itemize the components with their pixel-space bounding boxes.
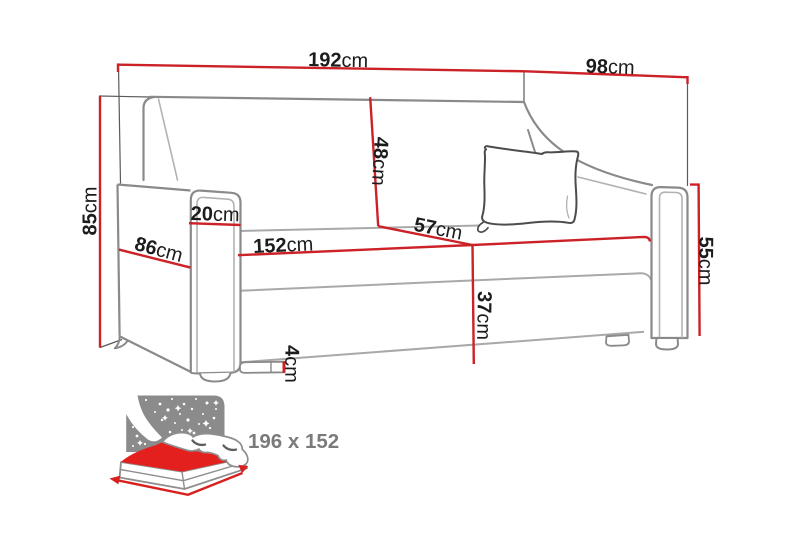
- svg-text:152cm: 152cm: [253, 233, 314, 258]
- svg-text:20cm: 20cm: [190, 203, 239, 226]
- svg-text:48cm: 48cm: [367, 136, 392, 186]
- svg-text:4cm: 4cm: [280, 345, 302, 383]
- svg-text:85cm: 85cm: [80, 187, 102, 236]
- svg-text:37cm: 37cm: [472, 291, 495, 340]
- svg-text:196 x 152: 196 x 152: [248, 430, 339, 453]
- svg-text:192cm: 192cm: [308, 49, 368, 72]
- svg-text:55cm: 55cm: [694, 236, 716, 285]
- svg-text:98cm: 98cm: [585, 56, 635, 80]
